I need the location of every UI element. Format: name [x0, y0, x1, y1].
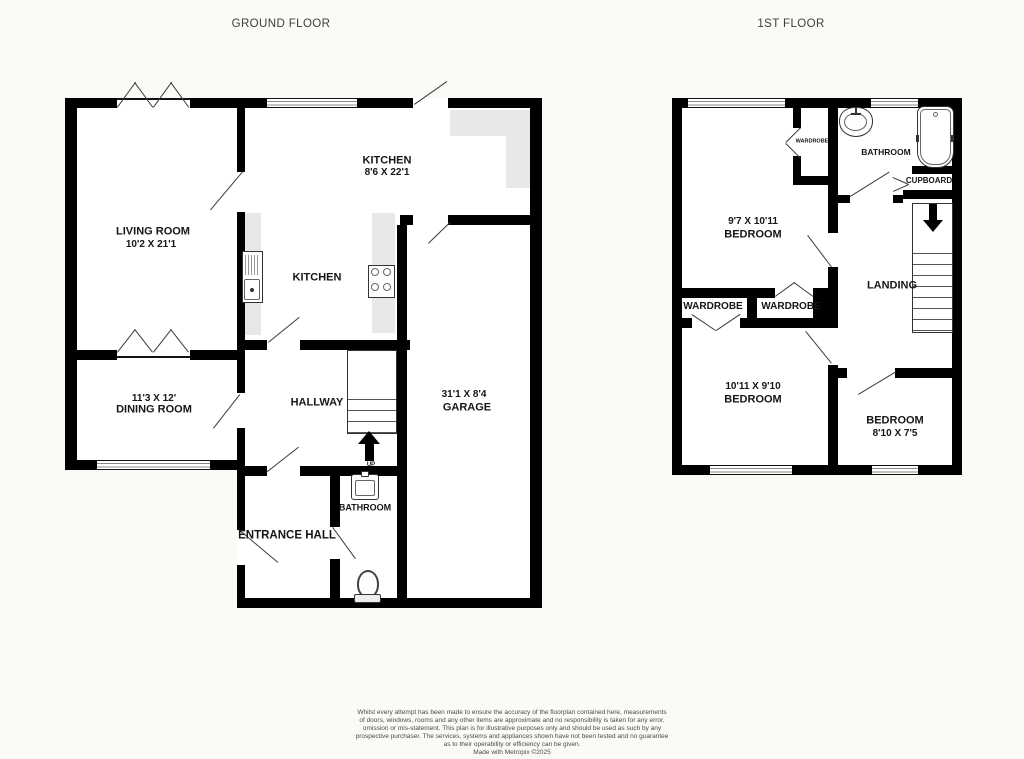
stair-treads	[348, 389, 396, 433]
room-label-wardrobe-right: WARDROBE	[761, 302, 820, 312]
room-label-bedroom-1: BEDROOM	[724, 230, 781, 241]
wall	[893, 195, 903, 203]
wall	[397, 225, 407, 608]
floorplan-canvas: GROUND FLOOR 1ST FLOOR	[0, 0, 1024, 759]
stairs-down-arrow-icon	[929, 204, 937, 220]
disclaimer-line: prospective purchaser. The services, sys…	[297, 733, 727, 741]
room-label-bathroom: BATHROOM	[339, 504, 391, 513]
basin-icon	[844, 113, 867, 131]
opening-sill	[117, 356, 190, 358]
wall	[237, 598, 542, 608]
hob-icon	[383, 283, 391, 291]
wall	[828, 365, 838, 465]
wall	[190, 98, 267, 108]
room-dims-dining-room: 11'3 X 12'	[132, 394, 176, 404]
wall	[793, 176, 830, 185]
wall	[828, 195, 850, 203]
hob-icon	[371, 283, 379, 291]
room-label-bathroom-ff: BATHROOM	[861, 148, 910, 157]
window	[97, 460, 210, 470]
bath-icon	[920, 109, 951, 165]
wall	[330, 476, 340, 527]
basin-icon	[361, 471, 369, 477]
room-label-kitchen: KITCHEN	[363, 156, 412, 167]
room-label-bedroom-3: BEDROOM	[866, 416, 923, 427]
wall	[448, 98, 542, 108]
basin-icon	[855, 108, 857, 114]
kitchen-sink-icon	[250, 288, 254, 292]
room-label-kitchen-2: KITCHEN	[293, 273, 342, 284]
wall	[682, 288, 775, 298]
room-dims-garage: 31'1 X 8'4	[442, 390, 487, 400]
wall	[65, 460, 97, 470]
room-label-landing: LANDING	[867, 281, 917, 292]
disclaimer-line: omission or mis-statement. This plan is …	[297, 725, 727, 733]
room-label-garage: GARAGE	[443, 403, 491, 414]
wall	[740, 318, 815, 328]
room-label-wardrobe-small: WARDROBE	[796, 139, 829, 145]
room-label-hallway: HALLWAY	[291, 398, 344, 409]
window	[267, 98, 357, 108]
bath-icon	[951, 135, 954, 142]
room-dims-bedroom-3: 8'10 X 7'5	[873, 429, 918, 439]
bath-icon	[916, 135, 919, 142]
wall	[357, 98, 413, 108]
room-label-entrance-hall: ENTRANCE HALL	[238, 530, 336, 542]
toilet-icon	[354, 594, 381, 603]
window	[872, 465, 918, 475]
wall	[828, 108, 838, 233]
wall	[792, 465, 872, 475]
disclaimer-line: Whilst every attempt has been made to en…	[297, 709, 727, 717]
credit-line: Made with Metropix ©2025	[297, 749, 727, 757]
kitchen-counter	[506, 136, 532, 188]
wall	[530, 98, 542, 608]
room-dims-living-room: 10'2 X 21'1	[126, 240, 176, 250]
first-floor-title: 1ST FLOOR	[757, 18, 824, 30]
stairs-up-arrow-icon	[365, 444, 374, 461]
stair-treads	[913, 243, 952, 332]
stairs-up-label: UP	[367, 462, 375, 468]
wall	[65, 350, 117, 360]
wall	[65, 98, 77, 470]
disclaimer: Whilst every attempt has been made to en…	[297, 709, 727, 756]
window	[710, 465, 792, 475]
room-label-cupboard: CUPBOARD	[906, 177, 952, 185]
wall	[838, 368, 847, 378]
bath-icon	[933, 112, 938, 117]
wall	[672, 98, 682, 475]
window	[871, 98, 918, 108]
room-dims-bedroom-1: 9'7 X 10'11	[728, 217, 778, 227]
room-label-living-room: LIVING ROOM	[116, 227, 190, 238]
wall	[903, 190, 953, 199]
wall	[245, 340, 267, 350]
kitchen-counter	[450, 110, 532, 136]
wall	[682, 318, 692, 328]
wall	[190, 350, 245, 360]
room-dims-bedroom-2: 10'11 X 9'10	[725, 382, 780, 392]
wall	[793, 108, 801, 128]
wall	[300, 340, 410, 350]
stairs-up-arrow-icon	[358, 431, 380, 444]
wall	[330, 559, 340, 598]
disclaimer-line: of doors, windows, rooms and any other i…	[297, 717, 727, 725]
disclaimer-line: as to their operability or efficiency ca…	[297, 741, 727, 749]
wall	[237, 108, 245, 172]
wall	[245, 466, 267, 476]
wall	[237, 565, 245, 608]
basin-icon	[355, 480, 375, 496]
wall	[793, 156, 801, 178]
room-label-bedroom-2: BEDROOM	[724, 395, 781, 406]
wall	[400, 215, 413, 225]
wall	[895, 368, 952, 378]
room-label-dining-room: DINING ROOM	[116, 405, 192, 416]
window-sill	[117, 98, 190, 100]
ground-floor-title: GROUND FLOOR	[232, 18, 331, 30]
room-label-wardrobe-left: WARDROBE	[683, 302, 742, 312]
wall	[237, 360, 245, 393]
stairs-down-arrow-icon	[923, 220, 943, 232]
wall	[237, 428, 245, 530]
wall	[448, 215, 542, 225]
room-dims-kitchen: 8'6 X 22'1	[365, 168, 410, 178]
kitchen-sink-icon	[245, 255, 259, 275]
window	[688, 98, 785, 108]
hob-icon	[371, 268, 379, 276]
hob-icon	[383, 268, 391, 276]
